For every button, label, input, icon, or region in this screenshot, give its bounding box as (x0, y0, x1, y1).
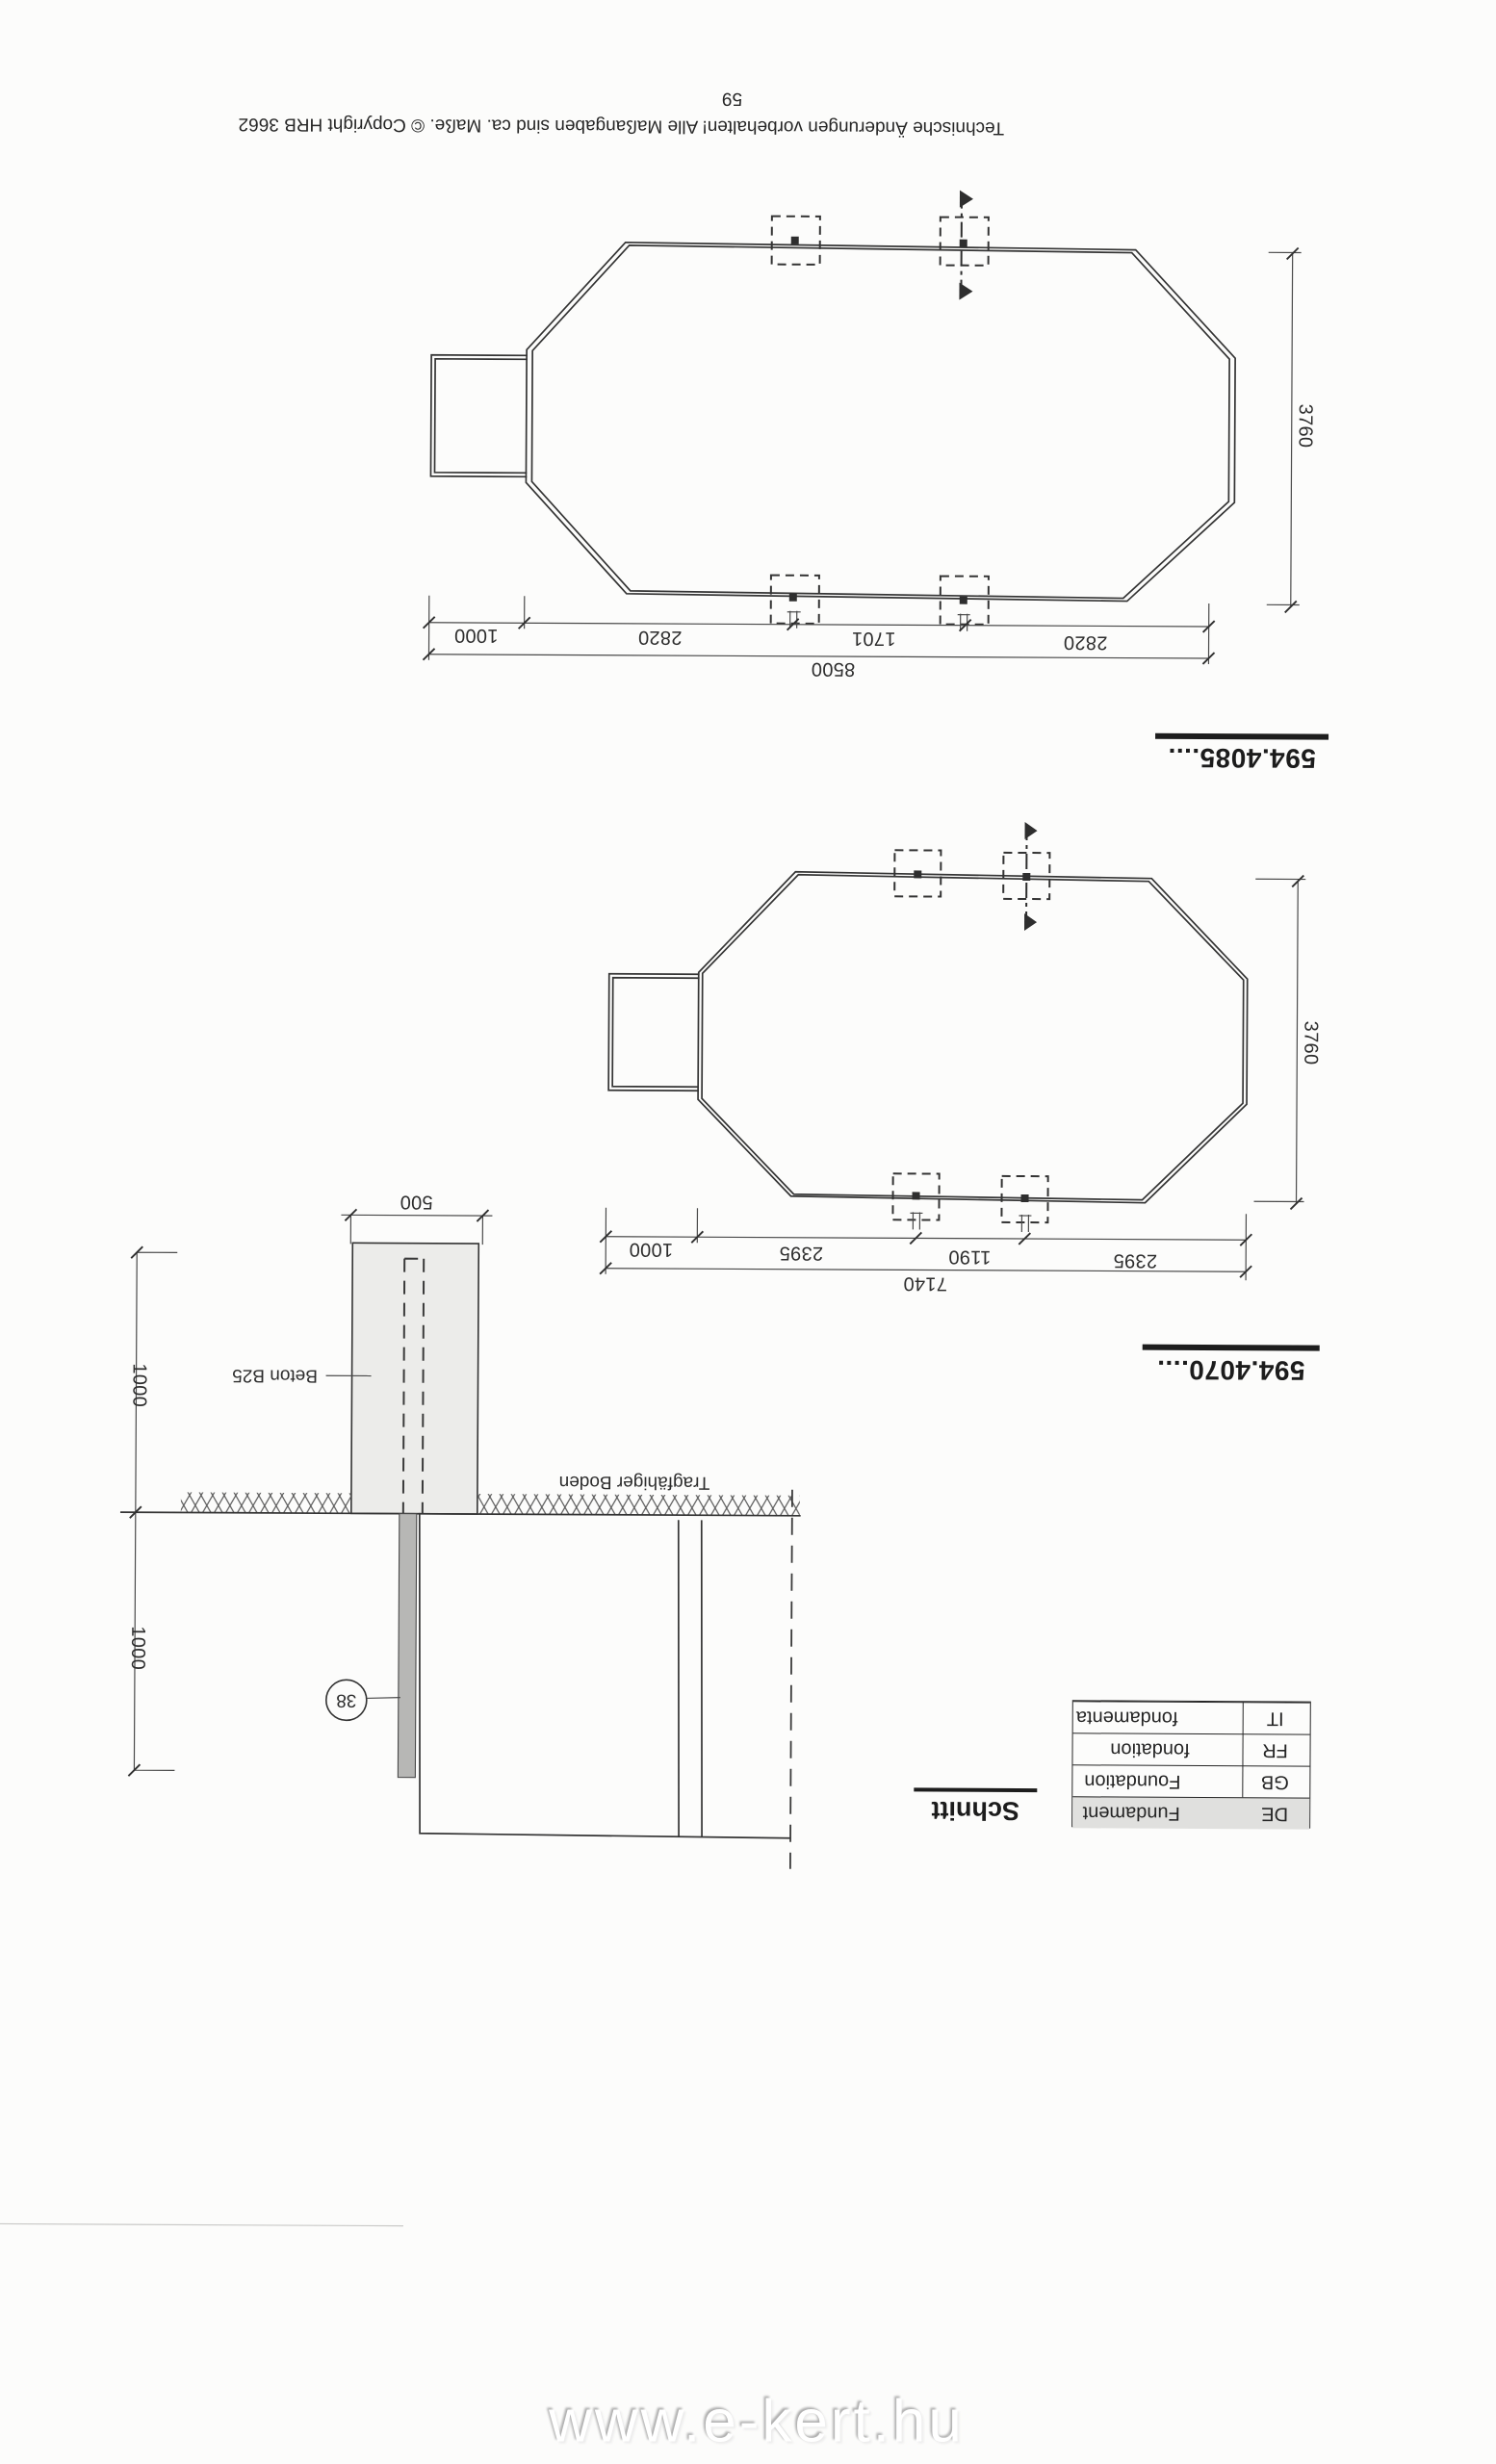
anchor-icon (960, 597, 967, 604)
page-number: 59 (722, 90, 742, 108)
dim-label: 2395 (779, 1244, 823, 1263)
model-underline (1143, 1345, 1320, 1351)
detail-ref-number: 38 (336, 1691, 356, 1709)
plan-4085-ladder-box-outer (430, 355, 527, 477)
plan-4070-ladder-box-inner (612, 978, 699, 1087)
dim-label: 1000 (129, 1363, 148, 1407)
table-row: fondamenta IT (1073, 1701, 1310, 1733)
ground-hatching (181, 1492, 351, 1513)
technical-drawing-linework (0, 0, 1496, 2464)
anchor-bolt-symbol (910, 1212, 1031, 1232)
wall-post (398, 1514, 416, 1778)
concrete-foundation-block (351, 1243, 478, 1514)
legend-lang: FR (1262, 1740, 1288, 1759)
dim-label-width: 3760 (1301, 1021, 1320, 1065)
section-arrow-icon (960, 191, 973, 208)
section-drawing (119, 1208, 802, 1869)
anchor-icon (1021, 1194, 1029, 1202)
section-cut-line (1026, 825, 1027, 926)
soil-label: Tragfähiger Boden (559, 1473, 710, 1492)
pool-basin-outline (418, 1514, 791, 1838)
language-legend-table: fondamenta IT fondation FR Foundation GB… (1071, 1700, 1311, 1828)
table-row: Fundament DE (1072, 1796, 1309, 1829)
model-number: 594.4070.... (1157, 1356, 1305, 1384)
dim-label: 2820 (638, 628, 683, 647)
anchor-icon (913, 1192, 920, 1199)
section-depth-dim (134, 1252, 177, 1770)
dim-label: 1190 (948, 1247, 991, 1267)
dim-label: 2820 (1064, 632, 1108, 652)
concrete-label: Beton B25 (232, 1366, 318, 1384)
watermark: www.e-kert.hu (549, 2388, 965, 2456)
plan-4070-ladder-box-outer (608, 974, 699, 1091)
dim-label: 1000 (128, 1626, 147, 1670)
dim-label-total: 7140 (903, 1273, 947, 1293)
plan-4070-width-dim-line (1254, 879, 1306, 1203)
copyright-line: Technische Änderungen vorbehalten! Alle … (239, 115, 1005, 137)
section-width-dim (341, 1215, 492, 1245)
plan-4085-outline-inner (531, 244, 1230, 599)
dim-label: 2395 (1113, 1250, 1157, 1270)
section-title: Schnitt (931, 1797, 1019, 1823)
page-content: Technische Änderungen vorbehalten! Alle … (0, 0, 1496, 2464)
ground-hatching (477, 1494, 800, 1516)
table-row: fondation FR (1072, 1732, 1309, 1765)
dim-label: 500 (400, 1193, 432, 1212)
plan-4085-ladder-box-inner (434, 359, 527, 473)
model-underline (1155, 733, 1328, 740)
legend-term: Foundation (1084, 1771, 1180, 1791)
anchor-icon (791, 237, 799, 244)
section-arrow-icon (1024, 913, 1037, 931)
model-number: 594.4085.... (1168, 744, 1316, 772)
dim-label: 1000 (629, 1240, 673, 1259)
section-cut-line (961, 193, 962, 295)
plan-4070-chain-dim-line (606, 1237, 1246, 1240)
plan-4085-drawing (423, 188, 1302, 665)
centerline-dashed (790, 1490, 792, 1869)
detail-ref-leader (367, 1697, 400, 1698)
plan-4070-drawing (600, 820, 1305, 1281)
legend-lang: GB (1261, 1772, 1289, 1791)
anchor-icon (914, 870, 921, 878)
table-row: Foundation GB (1072, 1764, 1309, 1797)
anchor-icon (789, 594, 797, 602)
pool-wall-lines (677, 1521, 704, 1835)
dim-label-total: 8500 (812, 659, 856, 679)
plan-4070-outline-inner (702, 874, 1245, 1200)
dim-label: 1701 (852, 629, 896, 648)
legend-term: Fundament (1082, 1803, 1179, 1823)
plan-4085-chain-dim-line (429, 623, 1209, 627)
section-arrow-icon (1024, 822, 1037, 839)
scan-artifact-line (0, 2223, 403, 2225)
legend-lang: DE (1261, 1804, 1288, 1823)
legend-term: fondation (1110, 1739, 1189, 1758)
dim-label: 1000 (454, 626, 499, 645)
legend-lang: IT (1267, 1708, 1284, 1728)
legend-term: fondamenta (1076, 1707, 1178, 1728)
scanned-manual-page: Technische Änderungen vorbehalten! Alle … (0, 0, 1496, 2464)
plan-4070-outline-outer (698, 871, 1249, 1203)
plan-4085-outline-outer (526, 242, 1236, 602)
section-arrow-icon (959, 283, 972, 300)
dim-label-width: 3760 (1296, 404, 1315, 449)
section-title-underline (914, 1787, 1037, 1792)
dim-ticks (128, 1246, 142, 1776)
